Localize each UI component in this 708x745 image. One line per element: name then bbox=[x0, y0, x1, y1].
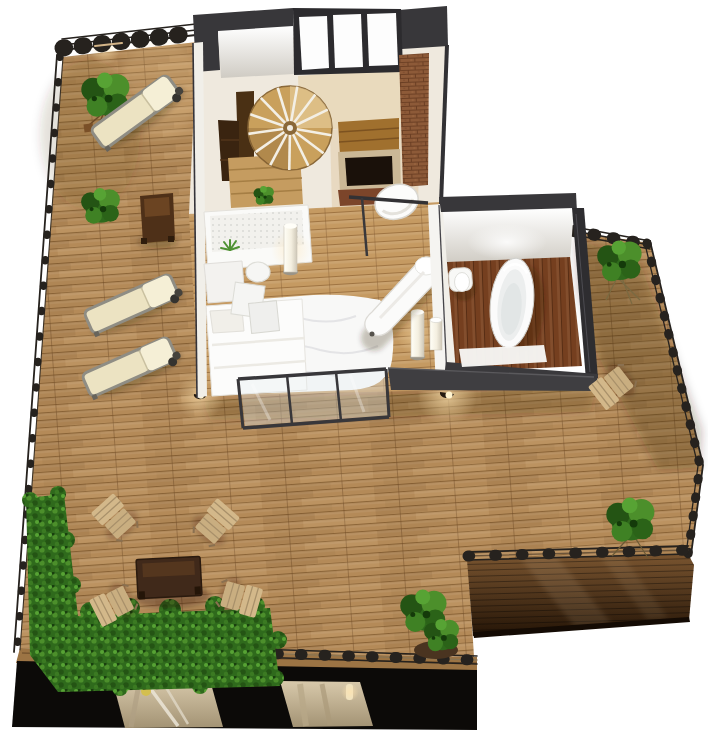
coffee-table bbox=[133, 556, 212, 610]
desk-chair bbox=[246, 262, 270, 282]
window-pane bbox=[299, 16, 329, 70]
firewood-bench bbox=[338, 118, 399, 155]
bathroom bbox=[439, 193, 598, 389]
north-windows bbox=[293, 8, 403, 75]
wall-block-ne bbox=[399, 6, 448, 49]
pedestal-sink bbox=[430, 317, 442, 350]
indoor-plant bbox=[254, 186, 274, 205]
side-bench bbox=[138, 193, 178, 249]
floorplan-render: 3D apartment floor plan with wrap-around… bbox=[0, 0, 708, 745]
render-canvas: 3D apartment floor plan with wrap-around… bbox=[0, 0, 708, 745]
hearth-opening bbox=[345, 156, 393, 186]
wall-face-nw bbox=[218, 26, 294, 78]
brick-chimney bbox=[399, 53, 429, 187]
spiral-staircase bbox=[248, 86, 332, 170]
deck-side-face bbox=[467, 554, 694, 638]
terrace-shrub-2 bbox=[81, 188, 120, 224]
bathroom-ceiling-light bbox=[467, 224, 547, 260]
window-pane bbox=[367, 13, 398, 66]
window-pane bbox=[333, 14, 363, 68]
south-glass-wall bbox=[238, 369, 389, 428]
apartment bbox=[189, 6, 598, 428]
